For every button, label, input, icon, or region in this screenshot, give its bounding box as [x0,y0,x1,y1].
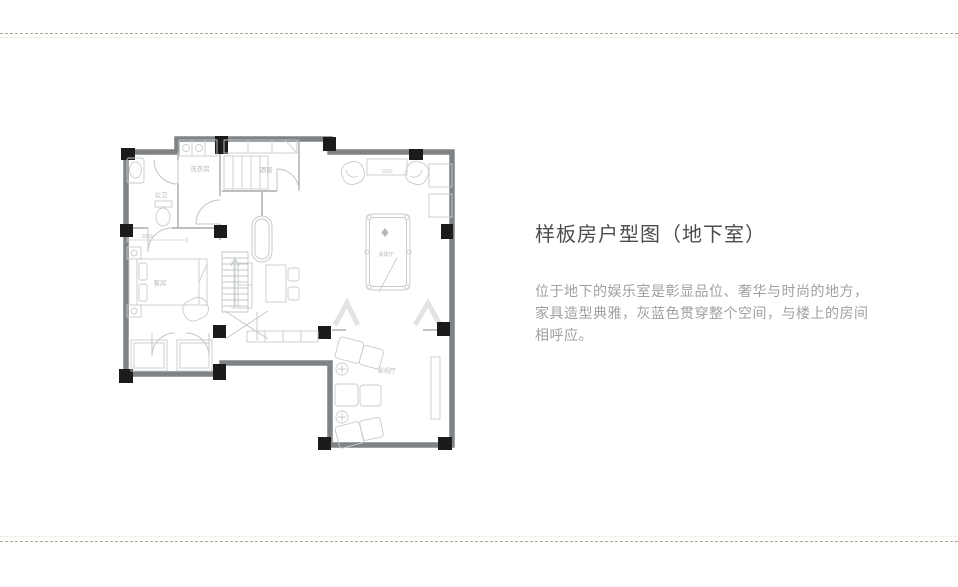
label-wine-cellar: 酒窖 [260,165,274,174]
home-theater-furniture [335,336,440,448]
wine-cellar-racks [224,140,297,189]
exterior-walls [126,139,452,445]
label-bathroom: 公卫 [155,191,169,199]
guest-room-furniture [127,247,318,371]
watermark [335,303,440,325]
description-line-1: 位于地下的娱乐室是彰显品位、奢华与时尚的地方， [535,280,900,302]
dim-guest-room: 2050 [141,234,152,240]
dimension-marks [127,237,187,243]
label-billiard-room: 桌球厅 [378,251,393,258]
description-line-3: 相呼应。 [535,324,900,346]
projection-screen [431,357,440,419]
staircase [222,216,272,340]
label-home-theater: 影视厅 [378,367,396,375]
label-laundry: 洗衣房 [190,164,210,173]
description-line-2: 家具造型典雅，灰蓝色贯穿整个空间，与楼上的房间 [535,302,900,324]
info-panel: 样板房户型图（地下室） 位于地下的娱乐室是彰显品位、奢华与时尚的地方， 家具造型… [535,222,900,346]
label-guest-room: 客房 [154,278,167,287]
billiard-room-furniture [266,159,452,302]
dim-bar-table: 1500 [381,169,392,175]
laundry-furniture [179,140,217,156]
page-canvas: 洗衣房 公卫 酒窖 客房 桌球厅 影视厅 1500 2050 样板房户型图（地下… [0,0,958,587]
interior-walls [126,139,437,330]
page-title: 样板房户型图（地下室） [535,222,900,248]
billiard-logo-diamond [382,228,389,237]
